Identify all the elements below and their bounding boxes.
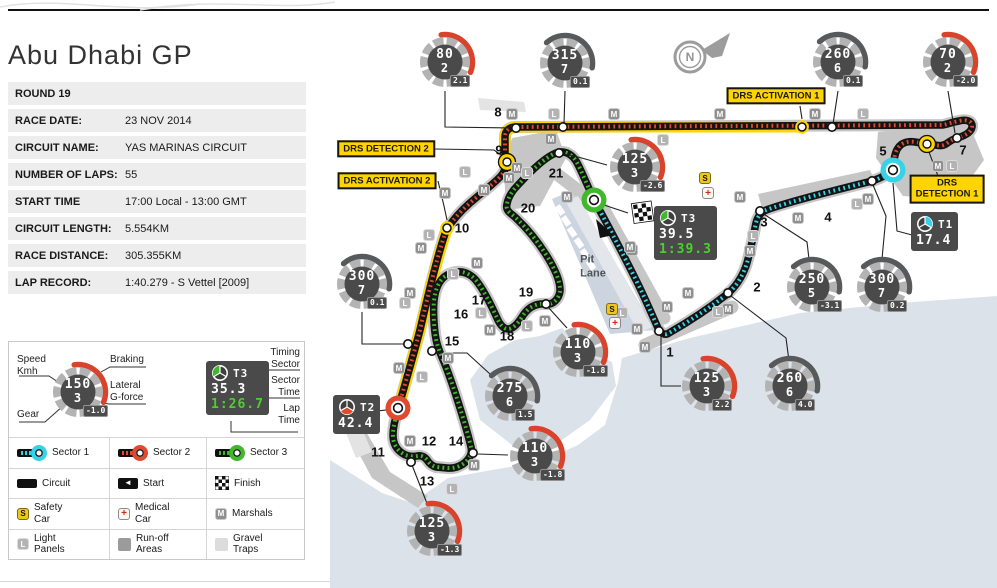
gauge-speed: 300 <box>331 269 393 284</box>
light-panel-badge: L <box>399 297 411 309</box>
marshal-badge: M <box>624 241 636 253</box>
light-panel-badge: L <box>416 371 428 383</box>
gauge-speed: 70 <box>917 47 979 62</box>
turn-number-13: 13 <box>420 474 434 489</box>
timing-value: 42.4 <box>338 416 375 431</box>
turn-number-16: 16 <box>454 307 468 322</box>
timing-value: 1:26.7 <box>211 397 264 412</box>
gauge-speed: 250 <box>781 272 843 287</box>
marshal-badge: M <box>415 242 427 254</box>
marshal-badge: M <box>404 435 416 447</box>
light-panel-badge: L <box>712 306 724 318</box>
marshal-badge: M <box>714 108 726 120</box>
marshal-badge: M <box>932 160 944 172</box>
speed-gauge: 70 2 -2.0 <box>917 31 979 93</box>
speed-gauge: 125 3 2.2 <box>676 355 738 417</box>
light-panel-badge: L <box>446 483 458 495</box>
gauge-gforce: 0.1 <box>570 76 590 88</box>
gauge-gforce: 2.2 <box>712 399 732 411</box>
gauge-gear: 6 <box>807 61 869 75</box>
pit-lane-label: Pit Lane <box>580 253 606 281</box>
marshal-badge: M <box>682 287 694 299</box>
turn-number-2: 2 <box>753 280 760 295</box>
gauge-gforce: -1.8 <box>540 469 565 481</box>
timing-box-t3: T339.51:39.3 <box>654 206 717 260</box>
drs-label: DRS ACTIVATION 2 <box>338 172 437 189</box>
timing-pie-icon <box>338 398 356 416</box>
speed-gauge: 275 6 1.5 <box>479 365 541 427</box>
gauge-gforce: 0.2 <box>887 300 907 312</box>
gauge-speed: 110 <box>547 337 609 352</box>
light-panel-badge: L <box>521 167 533 179</box>
turn-number-9: 9 <box>495 143 502 158</box>
gauge-gforce: -1.3 <box>437 544 462 556</box>
marshal-badge: M <box>471 257 483 269</box>
gauge-gear: 5 <box>781 286 843 300</box>
turn-number-17: 17 <box>472 293 486 308</box>
speed-gauge: 110 3 -1.8 <box>504 425 566 487</box>
gauge-gear: 6 <box>479 395 541 409</box>
safety-car-badge: S <box>699 172 711 184</box>
gauge-speed: 260 <box>807 47 869 62</box>
timing-value: 35.3 <box>211 382 264 397</box>
timing-sector-id: T2 <box>360 401 375 414</box>
marshal-badge: M <box>734 191 746 203</box>
light-panel-badge: L <box>946 160 958 172</box>
timing-sector-id: T3 <box>233 367 248 380</box>
speed-gauge: 315 7 0.1 <box>534 32 596 94</box>
drs-label: DRS DETECTION 1 <box>910 175 985 204</box>
speed-gauge: 250 5 -3.1 <box>781 256 843 318</box>
marshal-badge: M <box>503 172 515 184</box>
turn-number-4: 4 <box>824 210 831 225</box>
gauge-gear: 3 <box>676 385 738 399</box>
speed-gauge: 260 6 4.0 <box>759 355 821 417</box>
turn-number-14: 14 <box>449 434 463 449</box>
light-panel-badge: L <box>447 268 459 280</box>
gauge-speed: 275 <box>479 381 541 396</box>
gauge-gear: 6 <box>759 385 821 399</box>
gauge-speed: 125 <box>676 371 738 386</box>
timing-sector-id: T3 <box>681 212 696 225</box>
light-panel-badge: L <box>548 108 560 120</box>
gauge-gear: 3 <box>401 530 463 544</box>
turn-number-15: 15 <box>445 334 459 349</box>
drs-label: DRS DETECTION 2 <box>337 140 435 157</box>
marshal-badge: M <box>809 108 821 120</box>
turn-number-1: 1 <box>666 345 673 360</box>
medical-car-badge: + <box>702 187 714 199</box>
marshal-badge: M <box>561 191 573 203</box>
gauge-gforce: 4.0 <box>795 399 815 411</box>
speed-gauge: 125 3 -1.3 <box>401 500 463 562</box>
gauge-gforce: 1.5 <box>515 409 535 421</box>
turn-number-3: 3 <box>760 215 767 230</box>
marshal-badge: M <box>468 459 480 471</box>
legend-sample-timing-box: T335.31:26.7 <box>206 361 269 415</box>
light-panel-badge: L <box>423 229 435 241</box>
marshal-badge: M <box>608 108 620 120</box>
compass-n-label: N <box>686 50 695 64</box>
light-panels-icon: L <box>17 538 29 550</box>
gauge-gforce: 0.1 <box>843 75 863 87</box>
gauge-speed: 315 <box>534 48 596 63</box>
gauge-gear: 3 <box>547 351 609 365</box>
light-panel-badge: L <box>851 198 863 210</box>
timing-box-t2: T242.4 <box>333 395 380 434</box>
light-panel-badge: L <box>857 108 869 120</box>
gauge-gear: 7 <box>331 283 393 297</box>
speed-gauge: 110 3 -1.8 <box>547 321 609 383</box>
turn-number-5: 5 <box>879 144 886 159</box>
gauge-speed: 300 <box>851 272 913 287</box>
gauge-speed: 110 <box>504 441 566 456</box>
safety-car-badge: S <box>606 303 618 315</box>
marshal-badge: M <box>393 362 405 374</box>
gauge-gforce: -1.8 <box>583 365 608 377</box>
gauge-speed: 80 <box>414 47 476 62</box>
gauge-gear: 2 <box>414 61 476 75</box>
speed-gauge: 260 6 0.1 <box>807 31 869 93</box>
marshal-badge: M <box>484 324 496 336</box>
turn-number-20: 20 <box>521 201 535 216</box>
speed-gauge: 80 2 2.1 <box>414 31 476 93</box>
timing-value: 1:39.3 <box>659 242 712 257</box>
medical-car-icon: + <box>118 508 130 520</box>
marshal-badge: M <box>792 212 804 224</box>
turn-number-21: 21 <box>549 166 563 181</box>
turn-number-18: 18 <box>500 329 514 344</box>
gauge-gforce: -2.0 <box>953 75 978 87</box>
timing-pie-icon <box>916 215 934 233</box>
turn-number-19: 19 <box>519 285 533 300</box>
gauge-speed: 260 <box>759 371 821 386</box>
timing-box-t1: T117.4 <box>911 212 958 251</box>
marshals-icon: M <box>215 508 227 520</box>
drs-label: DRS ACTIVATION 1 <box>727 87 826 104</box>
gauge-gforce: -3.1 <box>817 300 842 312</box>
marshal-badge: M <box>744 245 756 257</box>
timing-value: 17.4 <box>916 233 953 248</box>
gauge-gforce: 2.1 <box>450 75 470 87</box>
timing-pie-icon <box>659 209 677 227</box>
light-panel-badge: L <box>747 230 759 242</box>
marshal-badge: M <box>862 193 874 205</box>
abu-dhabi-gp-infographic: { "title": "Abu Dhabi GP", "info": { "ro… <box>0 0 997 588</box>
safety-car-icon: S <box>17 508 29 520</box>
speed-gauge: 125 3 -2.6 <box>604 136 666 198</box>
turn-number-12: 12 <box>422 434 436 449</box>
timing-value: 39.5 <box>659 227 712 242</box>
map-overlay: 80 2 2.1 315 7 0.1 260 6 0.1 70 2 -2.0 1… <box>0 0 997 588</box>
speed-gauge: 300 7 0.1 <box>331 253 393 315</box>
turn-number-7: 7 <box>959 143 966 158</box>
timing-pie-icon <box>211 364 229 382</box>
turn-number-8: 8 <box>494 105 501 120</box>
gauge-gforce: 0.1 <box>367 297 387 309</box>
gauge-gear: 3 <box>504 455 566 469</box>
gauge-gear: 2 <box>917 61 979 75</box>
light-panel-badge: L <box>521 320 533 332</box>
marshal-badge: M <box>639 341 651 353</box>
marshal-badge: M <box>631 323 643 335</box>
gauge-gforce: -2.6 <box>640 180 665 192</box>
gauge-gear: 3 <box>604 166 666 180</box>
marshal-badge: M <box>506 108 518 120</box>
marshal-badge: M <box>545 133 557 145</box>
gauge-speed: 125 <box>401 516 463 531</box>
marshal-badge: M <box>661 301 673 313</box>
marshal-badge: M <box>478 184 490 196</box>
marshal-badge: M <box>442 352 454 364</box>
light-panel-badge: L <box>459 166 471 178</box>
speed-gauge: 300 7 0.2 <box>851 256 913 318</box>
marshal-badge: M <box>439 187 451 199</box>
light-panel-badge: L <box>475 307 487 319</box>
turn-number-11: 11 <box>371 445 385 460</box>
gauge-speed: 125 <box>604 152 666 167</box>
gauge-gear: 7 <box>534 62 596 76</box>
gauge-gear: 7 <box>851 286 913 300</box>
turn-number-10: 10 <box>455 221 469 236</box>
medical-car-badge: + <box>609 317 621 329</box>
timing-sector-id: T1 <box>938 218 953 231</box>
